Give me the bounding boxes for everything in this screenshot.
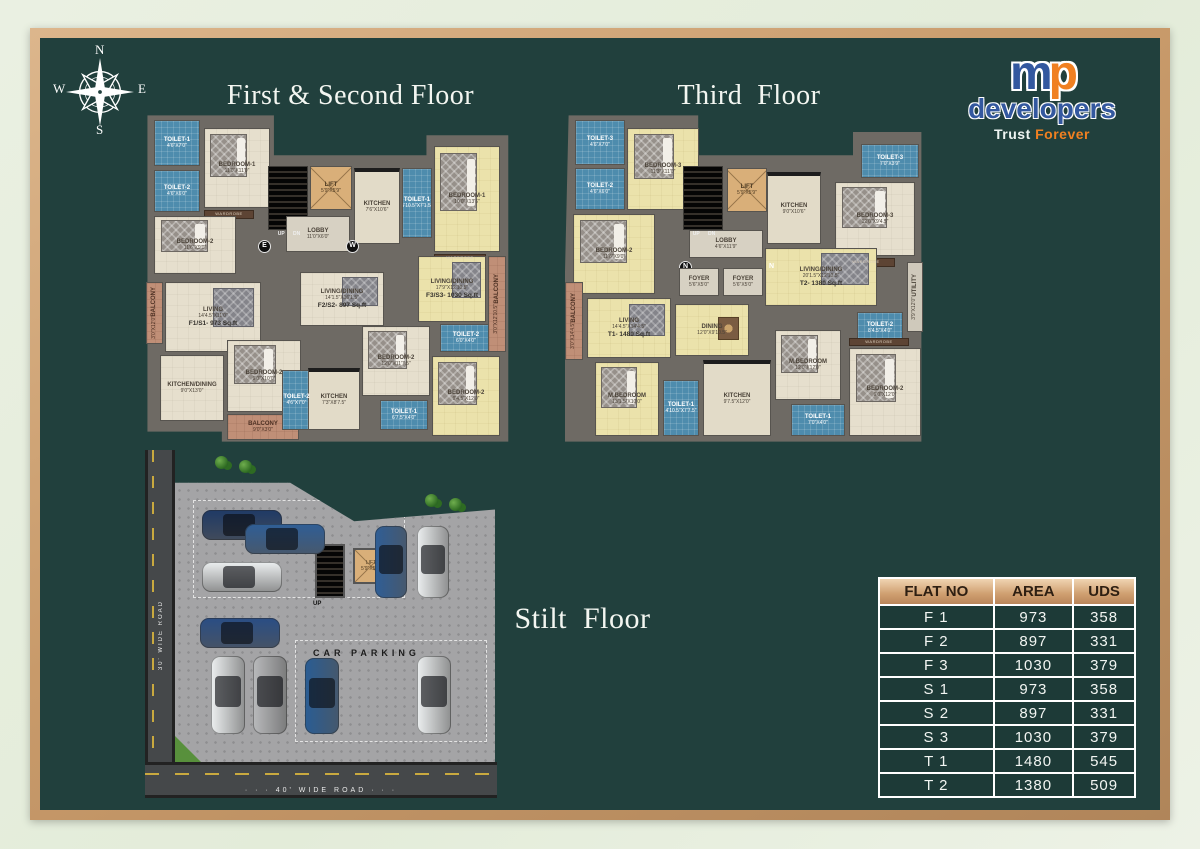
table-row: T 11480545 xyxy=(879,749,1135,773)
dining: DINING12'0"X9'10.5" xyxy=(675,304,749,356)
table-row: S 2897331 xyxy=(879,701,1135,725)
car xyxy=(245,524,325,554)
first-second-floor-title: First & Second Floor xyxy=(198,80,503,112)
flat-area-uds-table: FLAT NOAREAUDS F 1973358F 2897331F 31030… xyxy=(878,577,1136,798)
foyer: FOYER5'6"X5'0" xyxy=(679,268,719,296)
logo-developers-text: developers xyxy=(952,93,1132,125)
stilt-up-label: UP xyxy=(313,601,321,607)
gold-frame: N E S W First & Second Floor Third Floor… xyxy=(30,28,1170,820)
table-cell: 897 xyxy=(994,629,1074,653)
table-cell: F 3 xyxy=(879,653,994,677)
car xyxy=(200,618,280,648)
table-cell: F 1 xyxy=(879,605,994,629)
foyer: FOYER5'6"X5'0" xyxy=(723,268,763,296)
table-cell: 1480 xyxy=(994,749,1074,773)
table-cell: 379 xyxy=(1073,653,1135,677)
bedroom-3: BEDROOM-312'0"X9'4.5" xyxy=(835,182,915,256)
table-cell: S 3 xyxy=(879,725,994,749)
living-dining: LIVING/DINING14'1.5"X16'1.5"F2/S2- 897 S… xyxy=(300,272,384,326)
utility: UTILITY3'9"X12'0" xyxy=(907,262,923,332)
table-cell: 1380 xyxy=(994,773,1074,797)
compass-north-label: N xyxy=(95,42,104,58)
table-cell: 1030 xyxy=(994,725,1074,749)
stilt-floor-plan: 30' WIDE ROAD LIFT 5'9"X5'9" UP CAR PARK… xyxy=(145,450,497,800)
toilet-1: TOILET-14'6"X7'0" xyxy=(154,120,200,166)
car xyxy=(375,526,407,598)
toilet-1: TOILET-16'7.5"X4'0" xyxy=(380,400,428,430)
car xyxy=(211,656,245,734)
car xyxy=(305,658,339,734)
m-bedroom: M.BEDROOM13'1.5"X10'0" xyxy=(595,362,659,436)
living: LIVING14'4.5"X14'4.5"T1- 1480 Sq.ft xyxy=(587,298,671,358)
kitchen: KITCHEN9'7.5"X12'0" xyxy=(703,360,771,436)
table-header: AREA xyxy=(994,578,1074,605)
table-cell: 358 xyxy=(1073,605,1135,629)
table-cell: S 2 xyxy=(879,701,994,725)
table-cell: 973 xyxy=(994,677,1074,701)
stilt-floor-title: Stilt Floor xyxy=(490,602,675,636)
left-road-label: 30' WIDE ROAD xyxy=(158,600,164,670)
table-cell: 545 xyxy=(1073,749,1135,773)
lift: LIFT5'9"X5'9" xyxy=(310,166,352,210)
stairs xyxy=(683,166,723,230)
balcony: BALCONY3'0"X12'10.5" xyxy=(488,256,506,352)
car xyxy=(417,526,449,598)
logo-tagline-trust: Trust xyxy=(994,126,1031,142)
table-row: F 31030379 xyxy=(879,653,1135,677)
bedroom-2: BEDROOM-211'6"X9'0" xyxy=(154,216,236,274)
bottom-road: · · · 40' WIDE ROAD · · · xyxy=(145,762,497,798)
tree-icon xyxy=(449,498,462,511)
kitchen: KITCHEN7'6"X10'6" xyxy=(354,168,400,244)
balcony: BALCONY3'0"X12'0" xyxy=(146,282,163,344)
kitchen: KITCHEN9'0"X10'6" xyxy=(767,172,821,244)
m-bedroom: M.BEDROOM12'0"X12'0" xyxy=(775,330,841,400)
table-row: T 21380509 xyxy=(879,773,1135,797)
table-cell: 973 xyxy=(994,605,1074,629)
table-row: F 2897331 xyxy=(879,629,1135,653)
logo-mp-monogram: mp xyxy=(952,54,1132,95)
compass-west-label: W xyxy=(53,81,65,97)
bedroom-2: BEDROOM-211'6"X9'0" xyxy=(573,214,655,294)
bedroom-1: BEDROOM-110'0"X13'6" xyxy=(434,146,500,252)
table-cell: F 2 xyxy=(879,629,994,653)
first-second-floor-plan: TOILET-14'6"X7'0"TOILET-24'6"X6'0"BEDROO… xyxy=(140,112,512,445)
table-row: S 1973358 xyxy=(879,677,1135,701)
toilet-2: TOILET-24'6"X6'0" xyxy=(154,170,200,212)
table-cell: 379 xyxy=(1073,725,1135,749)
toilet-2: TOILET-26'0"X4'0" xyxy=(440,324,492,352)
toilet-2: TOILET-24'6"X6'0" xyxy=(575,168,625,210)
compass-rose: N E S W xyxy=(54,44,146,140)
table-cell: S 1 xyxy=(879,677,994,701)
car xyxy=(253,656,287,734)
table-cell: 331 xyxy=(1073,629,1135,653)
table-cell: 331 xyxy=(1073,701,1135,725)
living-dining: LIVING/DINING17'9"X12'10.5"F3/S3- 1030 S… xyxy=(418,256,486,322)
w: W xyxy=(346,240,359,253)
logo-tagline: Trust Forever xyxy=(952,126,1132,142)
car-parking-label: CAR PARKING xyxy=(313,648,420,658)
compass-south-label: S xyxy=(96,122,103,138)
mp-developers-logo: mp developers Trust Forever xyxy=(952,54,1132,142)
toilet-1: TOILET-17'0"X4'0" xyxy=(791,404,845,436)
table-cell: 897 xyxy=(994,701,1074,725)
bedroom-2: BEDROOM-29'0"X12'0" xyxy=(849,348,921,436)
table-cell: 509 xyxy=(1073,773,1135,797)
bedroom-1: BEDROOM-111'0"X11'0" xyxy=(204,128,270,208)
toilet-2: TOILET-24'6"X7'0" xyxy=(282,370,311,430)
logo-tagline-forever: Forever xyxy=(1035,126,1090,142)
bottom-road-label: · · · 40' WIDE ROAD · · · xyxy=(145,787,497,794)
toilet-3: TOILET-37'0"X3'9" xyxy=(861,144,919,178)
compass-east-label: E xyxy=(138,81,146,97)
compass-star-icon xyxy=(66,58,134,126)
table-cell: T 1 xyxy=(879,749,994,773)
wardrobe: WARDROBE xyxy=(849,338,909,346)
table-cell: 1030 xyxy=(994,653,1074,677)
brochure-panel: N E S W First & Second Floor Third Floor… xyxy=(40,38,1160,810)
toilet-1: TOILET-15'10.5"X7'1.5" xyxy=(402,168,432,238)
table-row: S 31030379 xyxy=(879,725,1135,749)
table-row: F 1973358 xyxy=(879,605,1135,629)
car xyxy=(202,562,282,592)
table-header: FLAT NO xyxy=(879,578,994,605)
e: E xyxy=(258,240,271,253)
table-cell: T 2 xyxy=(879,773,994,797)
table-cell: 358 xyxy=(1073,677,1135,701)
table-header: UDS xyxy=(1073,578,1135,605)
third-floor-plan: TOILET-34'6"X7'0"TOILET-24'6"X6'0"BEDROO… xyxy=(565,112,925,445)
kitchen: KITCHEN7'3"X8'7.5" xyxy=(308,368,360,430)
toilet-3: TOILET-34'6"X7'0" xyxy=(575,120,625,165)
tree-icon xyxy=(425,494,438,507)
balcony: BALCONY3'0"X14'4.5" xyxy=(565,282,583,360)
lift: LIFT5'9"X5'9" xyxy=(727,168,767,212)
tree-icon xyxy=(215,456,228,469)
third-floor-title: Third Floor xyxy=(640,80,858,112)
tree-icon xyxy=(239,460,252,473)
living-dining: LIVING/DINING20'1.5"X12'10.5"T2- 1380 Sq… xyxy=(765,248,877,306)
kitchen-dining: KITCHEN/DINING9'0"X13'0" xyxy=(160,355,224,421)
bedroom-2: BEDROOM-212'0"X11'7.5" xyxy=(362,326,430,396)
car xyxy=(417,656,451,734)
bedroom-2: BEDROOM-29'4.5"X12'0" xyxy=(432,356,500,436)
toilet-1: TOILET-14'10.5"X7'7.5" xyxy=(663,380,699,436)
